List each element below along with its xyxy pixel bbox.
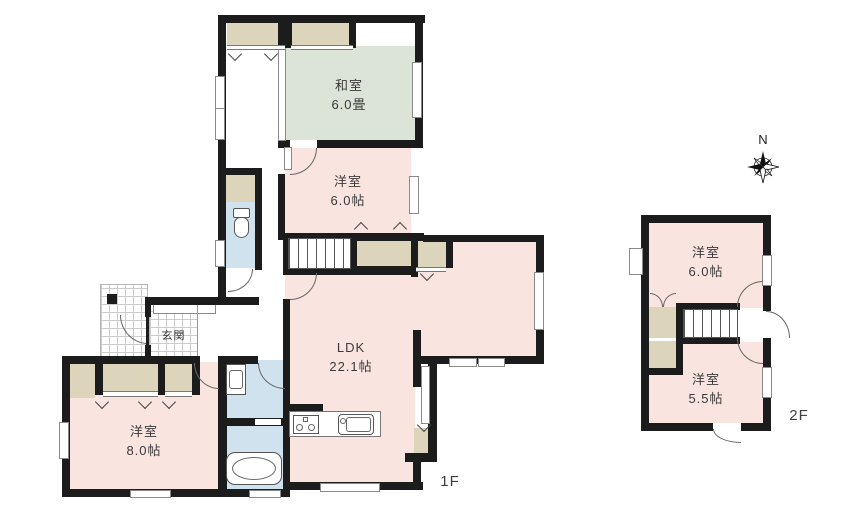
bathtub-inner-icon xyxy=(232,457,276,480)
stove-knob-icon xyxy=(303,417,308,422)
wall xyxy=(741,423,771,431)
porch-pillar xyxy=(107,294,117,304)
room-ldk-floor-main xyxy=(285,268,415,485)
closet-2f-upper xyxy=(649,307,676,338)
window xyxy=(534,272,544,330)
wall xyxy=(763,285,771,311)
sliding-door-track xyxy=(291,45,353,50)
yoshitsu6-2f-size: 6.0帖 xyxy=(649,262,763,281)
wall xyxy=(446,235,453,268)
wall xyxy=(641,215,771,223)
ldk-label: LDK 22.1帖 xyxy=(287,338,415,376)
washitsu-size: 6.0畳 xyxy=(283,95,415,114)
closet-2f-lower xyxy=(649,341,676,368)
wall xyxy=(423,235,544,242)
compass-north-label: N xyxy=(746,132,780,147)
wall xyxy=(763,338,771,367)
wall xyxy=(145,297,259,305)
closet-yoshitsu6 xyxy=(354,239,414,268)
room-ldk-floor-east xyxy=(448,241,536,358)
yoshitsu6-1f-name: 洋室 xyxy=(285,172,411,191)
window xyxy=(421,366,430,424)
window xyxy=(130,490,171,498)
wall xyxy=(145,297,151,317)
washitsu-name: 和室 xyxy=(283,76,415,95)
stairs-1f xyxy=(288,238,351,269)
closet-yoshitsu8-left xyxy=(66,364,95,398)
yoshitsu55-size: 5.5帖 xyxy=(649,389,763,408)
floor-2f-tag: 2F xyxy=(775,407,823,424)
wall xyxy=(676,303,683,373)
yoshitsu8-name: 洋室 xyxy=(69,422,219,441)
bath-sliding-door xyxy=(255,419,281,425)
door-swing-arc-2f-exterior xyxy=(766,311,790,338)
window xyxy=(762,367,772,398)
closet-above-toilet xyxy=(226,172,256,202)
yoshitsu6-1f-label: 洋室 6.0帖 xyxy=(285,172,411,210)
stove-burner-icon xyxy=(308,424,315,431)
stairs-2f xyxy=(683,309,738,338)
window xyxy=(320,483,380,492)
window xyxy=(215,108,225,140)
wall xyxy=(283,299,290,490)
yoshitsu6-2f-label: 洋室 6.0帖 xyxy=(649,243,763,281)
wall xyxy=(350,239,357,268)
closet-yoshitsu8-right xyxy=(165,364,192,391)
closet-ldk-north xyxy=(416,239,446,268)
yoshitsu6-2f-name: 洋室 xyxy=(649,243,763,262)
wall xyxy=(278,174,285,240)
ldk-size: 22.1帖 xyxy=(287,357,415,376)
wall xyxy=(413,462,421,490)
window xyxy=(59,422,69,459)
wall xyxy=(676,337,740,344)
wall xyxy=(405,453,437,462)
compass-icon xyxy=(746,150,780,184)
ldk-name: LDK xyxy=(287,338,415,357)
washing-machine-drum-icon xyxy=(229,370,243,389)
floor-plan-canvas: 和室 6.0畳 洋室 6.0帖 LDK 22.1帖 玄関 洋室 8.0帖 1F … xyxy=(0,0,856,514)
window xyxy=(762,255,772,286)
door-swing-arc-toilet xyxy=(228,269,253,292)
window xyxy=(449,358,477,367)
window xyxy=(629,248,643,275)
yoshitsu8-size: 8.0帖 xyxy=(69,441,219,460)
yoshitsu8-label: 洋室 8.0帖 xyxy=(69,422,219,460)
wall xyxy=(641,423,713,431)
wall xyxy=(158,364,165,395)
genkan-label: 玄関 xyxy=(149,330,198,343)
wall xyxy=(763,215,771,255)
wall xyxy=(62,356,195,364)
sliding-door-track xyxy=(103,391,158,397)
washitsu-label: 和室 6.0畳 xyxy=(283,76,415,114)
window xyxy=(215,240,225,267)
floor-1f-tag: 1F xyxy=(426,473,474,490)
yoshitsu55-name: 洋室 xyxy=(649,370,763,389)
genkan-name: 玄関 xyxy=(149,330,198,343)
yoshitsu55-label: 洋室 5.5帖 xyxy=(649,370,763,408)
toilet-icon xyxy=(234,217,249,238)
wall xyxy=(218,15,425,23)
closet-yoshitsu8-mid xyxy=(103,364,158,391)
stove-burner-icon xyxy=(296,424,303,431)
door-swing-arc-2f-bottom xyxy=(713,429,741,443)
faucet-icon xyxy=(340,418,346,424)
window xyxy=(478,358,505,367)
door-opening xyxy=(290,140,317,148)
wall xyxy=(95,364,103,395)
window xyxy=(249,490,281,498)
sink-basin-icon xyxy=(346,417,371,432)
window xyxy=(215,76,225,109)
yoshitsu6-1f-size: 6.0帖 xyxy=(285,191,411,210)
wall xyxy=(255,168,262,270)
